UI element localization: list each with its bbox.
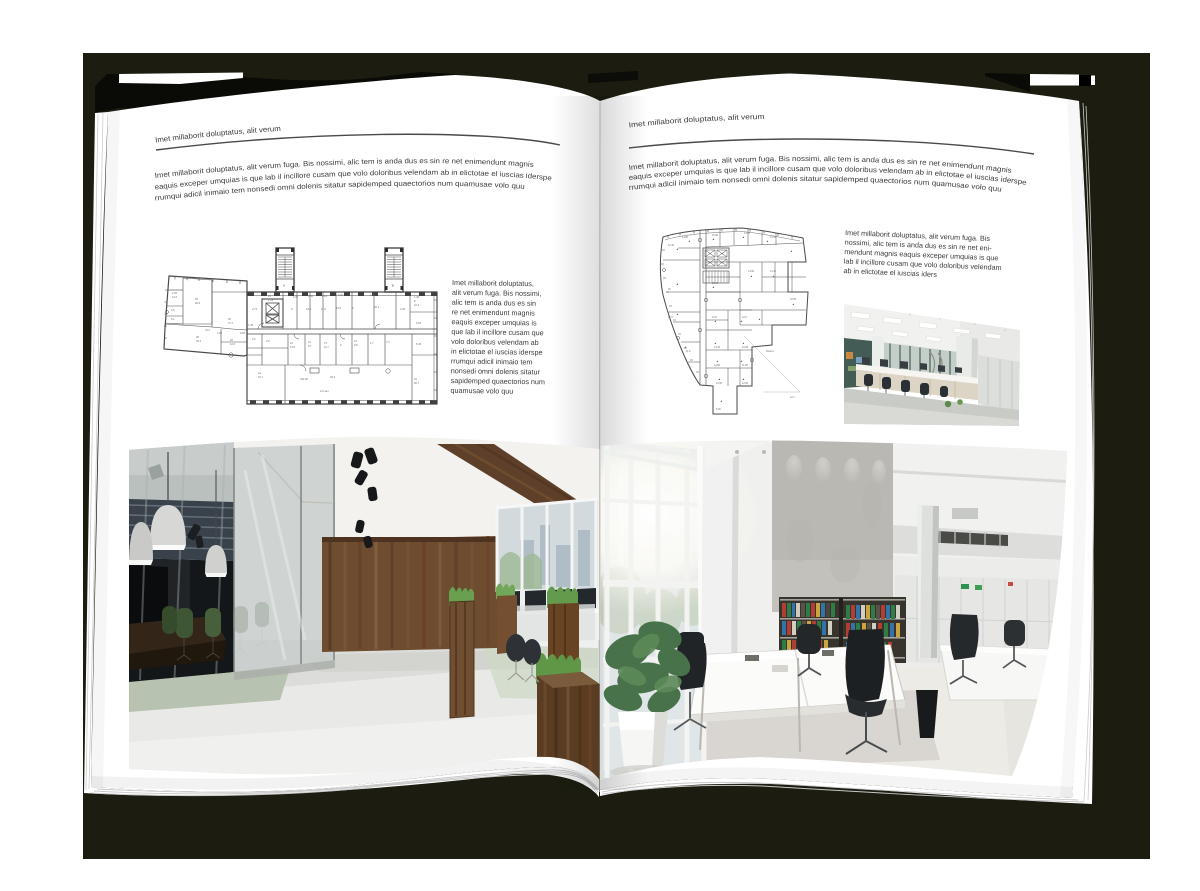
svg-text:▲: ▲ — [714, 341, 717, 345]
svg-text:8.7: 8.7 — [308, 344, 312, 348]
svg-text:14.66: 14.66 — [748, 270, 755, 273]
svg-text:30.2: 30.2 — [195, 301, 201, 305]
svg-text:▲: ▲ — [718, 377, 721, 381]
svg-text:7.3: 7.3 — [386, 340, 390, 344]
svg-text:Разрез: Разрез — [766, 350, 774, 353]
svg-text:▲: ▲ — [790, 249, 793, 253]
svg-text:▲: ▲ — [772, 274, 775, 278]
svg-text:Imet millaborit doluptatus,: Imet millaborit doluptatus, — [452, 278, 534, 288]
svg-text:▲: ▲ — [676, 247, 679, 251]
svg-text:342.00: 342.00 — [300, 377, 308, 381]
svg-text:2.6: 2.6 — [266, 339, 270, 343]
svg-text:3.00: 3.00 — [338, 293, 344, 297]
svg-text:nonsedi omni dolenis sitatur: nonsedi omni dolenis sitatur — [451, 366, 541, 376]
svg-text:14.05: 14.05 — [714, 346, 721, 349]
svg-text:2.72: 2.72 — [252, 307, 258, 311]
svg-text:4.06: 4.06 — [400, 307, 406, 311]
svg-text:▲: ▲ — [750, 274, 753, 278]
svg-text:▲: ▲ — [716, 359, 719, 363]
svg-text:re net enimendunt magnis: re net enimendunt magnis — [452, 307, 536, 317]
svg-text:2.6: 2.6 — [171, 308, 175, 312]
svg-text:20.1: 20.1 — [374, 305, 380, 309]
svg-text:12.6: 12.6 — [230, 342, 236, 346]
svg-text:▲: ▲ — [714, 319, 717, 323]
svg-text:quamusae volo quu: quamusae volo quu — [450, 386, 513, 396]
svg-text:▲: ▲ — [684, 345, 687, 349]
svg-text:31.7: 31.7 — [258, 375, 264, 379]
svg-text:14.5: 14.5 — [290, 345, 296, 349]
svg-text:1.7: 1.7 — [370, 341, 374, 345]
svg-text:2.06: 2.06 — [172, 291, 178, 295]
svg-text:11.66: 11.66 — [742, 364, 748, 367]
svg-text:▲: ▲ — [742, 235, 745, 239]
svg-text:27.8: 27.8 — [268, 298, 274, 302]
svg-text:13.8: 13.8 — [712, 316, 717, 319]
svg-text:rrumqui adicil inimaio tem: rrumqui adicil inimaio tem — [451, 356, 533, 366]
svg-text:2.10: 2.10 — [322, 294, 328, 298]
svg-text:A: A — [283, 284, 285, 288]
svg-text:15.98: 15.98 — [712, 234, 719, 237]
svg-text:▲: ▲ — [676, 282, 679, 286]
svg-text:in elictotae el iuscias idersp: in elictotae el iuscias iderspe — [451, 347, 543, 357]
svg-text:10.2: 10.2 — [414, 303, 420, 307]
svg-text:12.8: 12.8 — [306, 307, 312, 311]
svg-text:5.1: 5.1 — [171, 317, 175, 321]
svg-text:2.75: 2.75 — [293, 295, 299, 299]
svg-text:1.45: 1.45 — [414, 295, 420, 299]
svg-text:13.31: 13.31 — [770, 270, 777, 273]
svg-text:eaquis exceper umquias is: eaquis exceper umquias is — [451, 317, 537, 327]
svg-text:▲: ▲ — [688, 239, 691, 243]
svg-text:40.2: 40.2 — [196, 339, 202, 343]
svg-text:alit verum fuga. Bis nossimi,: alit verum fuga. Bis nossimi, — [452, 288, 542, 298]
svg-text:42.5: 42.5 — [668, 316, 673, 319]
svg-text:13.65: 13.65 — [744, 232, 751, 235]
svg-text:▲: ▲ — [712, 237, 715, 241]
svg-text:9.8: 9.8 — [354, 343, 358, 347]
svg-text:11.9: 11.9 — [686, 350, 691, 353]
svg-text:0.54: 0.54 — [416, 321, 422, 325]
svg-text:▲: ▲ — [792, 302, 795, 306]
svg-text:4.55: 4.55 — [240, 331, 246, 335]
svg-text:▲: ▲ — [676, 312, 679, 316]
svg-text:4.03: 4.03 — [217, 331, 223, 335]
svg-text:12.66: 12.66 — [742, 382, 749, 385]
svg-text:▲: ▲ — [766, 239, 769, 243]
svg-text:12.1: 12.1 — [790, 396, 795, 399]
svg-text:▲: ▲ — [742, 377, 745, 381]
svg-text:2.6: 2.6 — [252, 337, 256, 341]
svg-text:14.86: 14.86 — [682, 236, 689, 239]
svg-text:que lab il incillore cusam que: que lab il incillore cusam que — [451, 327, 543, 337]
svg-text:3.75: 3.75 — [370, 293, 376, 297]
svg-text:11.6: 11.6 — [321, 307, 326, 311]
svg-text:12.9: 12.9 — [742, 316, 747, 319]
svg-text:2-й зал: 2-й зал — [320, 389, 329, 393]
svg-text:16.65: 16.65 — [790, 298, 797, 301]
svg-text:volo doloribus velendam ab: volo doloribus velendam ab — [451, 337, 539, 347]
svg-text:2.80: 2.80 — [308, 294, 314, 298]
svg-text:▲: ▲ — [712, 285, 715, 289]
svg-text:▲: ▲ — [740, 359, 743, 363]
svg-text:Б: Б — [392, 284, 394, 288]
svg-text:90.7: 90.7 — [414, 381, 420, 385]
svg-text:12.05: 12.05 — [770, 236, 777, 239]
svg-text:37.7: 37.7 — [228, 321, 234, 325]
svg-text:alic tem is anda dus es sin: alic tem is anda dus es sin — [452, 298, 536, 308]
svg-text:13.05: 13.05 — [716, 382, 723, 385]
svg-text:5.06: 5.06 — [716, 408, 721, 411]
svg-text:10.5: 10.5 — [336, 306, 342, 310]
svg-text:5.45: 5.45 — [416, 342, 422, 346]
svg-text:▲: ▲ — [720, 399, 723, 403]
svg-text:11.7: 11.7 — [324, 345, 329, 349]
svg-text:12.6: 12.6 — [172, 295, 178, 299]
svg-text:3.11: 3.11 — [205, 328, 210, 332]
svg-text:▲: ▲ — [758, 317, 761, 321]
svg-text:25.36: 25.36 — [712, 282, 719, 285]
svg-text:sapidemped quaectorios num: sapidemped quaectorios num — [451, 376, 545, 386]
svg-text:12.05: 12.05 — [714, 364, 721, 367]
svg-text:1.45: 1.45 — [248, 323, 254, 327]
svg-text:12.46: 12.46 — [668, 244, 675, 247]
svg-text:▲: ▲ — [742, 341, 745, 345]
svg-text:46.3: 46.3 — [330, 375, 336, 379]
svg-text:10.05: 10.05 — [742, 346, 749, 349]
svg-text:▲: ▲ — [740, 319, 743, 323]
